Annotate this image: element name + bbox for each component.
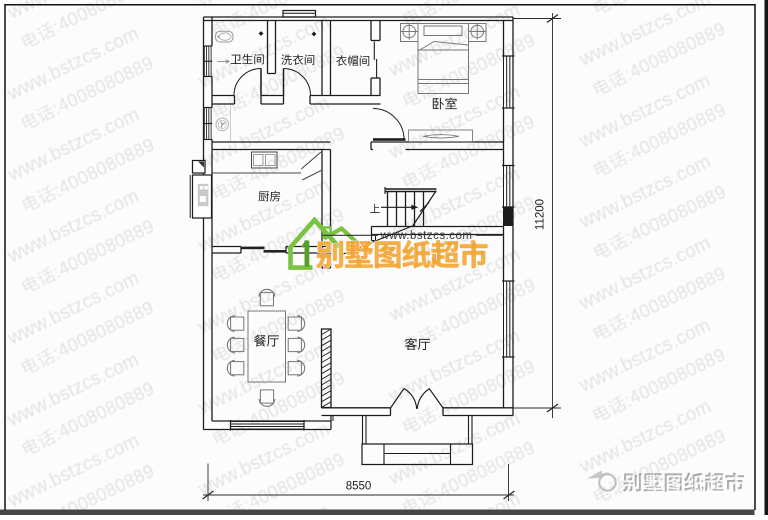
svg-text:8550: 8550 (346, 481, 372, 493)
svg-text:www.bstzcs.com: www.bstzcs.com (380, 230, 473, 242)
svg-text:11200: 11200 (535, 199, 547, 230)
